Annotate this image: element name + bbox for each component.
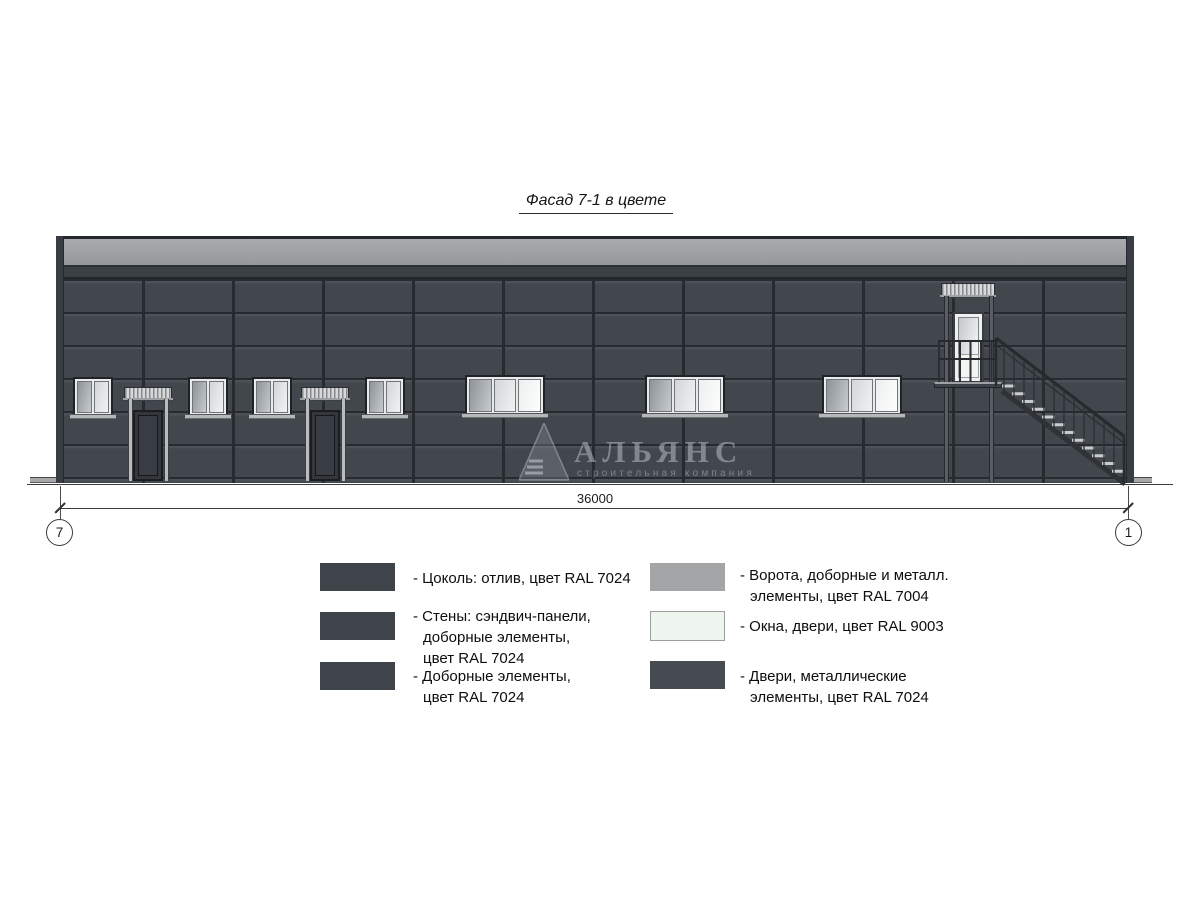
window-pane: [875, 379, 898, 412]
exterior-staircase: [920, 270, 1130, 490]
legend-swatch-doors: [650, 661, 725, 689]
legend-label-doors: - Двери, металлические элементы, цвет RA…: [740, 666, 929, 708]
legend-line: - Цоколь: отлив, цвет RAL 7024: [413, 568, 631, 589]
facade-drawing-sheet: Фасад 7-1 в цвете: [0, 0, 1200, 900]
legend-line: доборные элементы,: [413, 627, 591, 648]
window-pane: [77, 381, 92, 413]
window-3pane: [822, 375, 902, 416]
window-pane: [256, 381, 271, 413]
window-pane: [674, 379, 697, 412]
corner-trim-left: [56, 236, 64, 483]
canopy-post: [128, 399, 133, 481]
window-2pane: [73, 377, 113, 417]
legend-label-windows: - Окна, двери, цвет RAL 9003: [740, 616, 944, 637]
entrance-door-assembly: [301, 387, 349, 481]
legend-label-trim: - Доборные элементы, цвет RAL 7024: [413, 666, 571, 708]
door-canopy: [301, 387, 349, 399]
legend-swatch-windows: [650, 611, 725, 641]
window-pane: [369, 381, 384, 413]
legend-line: - Ворота, доборные и металл.: [740, 565, 949, 586]
page-title: Фасад 7-1 в цвете: [446, 192, 746, 214]
window-2pane: [188, 377, 228, 417]
legend-line: цвет RAL 7024: [413, 687, 571, 708]
canopy-post: [305, 399, 310, 481]
window-2pane: [252, 377, 292, 417]
window-pane: [851, 379, 874, 412]
canopy-post: [341, 399, 346, 481]
metal-door: [133, 410, 163, 481]
legend-line: элементы, цвет RAL 7004: [740, 586, 949, 607]
legend-swatch-gates: [650, 563, 725, 591]
window-pane: [826, 379, 849, 412]
legend-line: - Доборные элементы,: [413, 666, 571, 687]
extension-line-right: [1128, 486, 1129, 519]
dimension-line: [60, 508, 1128, 509]
window-pane: [698, 379, 721, 412]
parapet-band: [63, 239, 1127, 267]
legend-label-gates: - Ворота, доборные и металл. элементы, ц…: [740, 565, 949, 607]
window-pane: [518, 379, 541, 412]
metal-door: [310, 410, 340, 481]
entrance-door-assembly: [124, 387, 172, 481]
window-pane: [649, 379, 672, 412]
extension-line-left: [60, 486, 61, 519]
legend-line: - Стены: сэндвич-панели,: [413, 606, 591, 627]
window-pane: [469, 379, 492, 412]
legend-swatch-trim: [320, 662, 395, 690]
window-3pane: [465, 375, 545, 416]
axis-number: 1: [1125, 525, 1133, 540]
window-3pane: [645, 375, 725, 416]
door-canopy: [124, 387, 172, 399]
legend-swatch-walls: [320, 612, 395, 640]
window-pane: [209, 381, 224, 413]
axis-bubble-7: 7: [46, 519, 73, 546]
window-pane: [192, 381, 207, 413]
legend-swatch-plinth: [320, 563, 395, 591]
legend-label-plinth: - Цоколь: отлив, цвет RAL 7024: [413, 568, 631, 589]
window-2pane: [365, 377, 405, 417]
canopy-post: [164, 399, 169, 481]
axis-bubble-1: 1: [1115, 519, 1142, 546]
legend-line: - Окна, двери, цвет RAL 9003: [740, 616, 944, 637]
legend-line: элементы, цвет RAL 7024: [740, 687, 929, 708]
legend-label-walls: - Стены: сэндвич-панели, доборные элемен…: [413, 606, 591, 669]
window-pane: [273, 381, 288, 413]
axis-number: 7: [56, 525, 64, 540]
dimension-value: 36000: [520, 491, 670, 506]
legend-line: - Двери, металлические: [740, 666, 929, 687]
stair-handrail: [996, 338, 1124, 436]
window-pane: [94, 381, 109, 413]
window-pane: [386, 381, 401, 413]
window-pane: [494, 379, 517, 412]
